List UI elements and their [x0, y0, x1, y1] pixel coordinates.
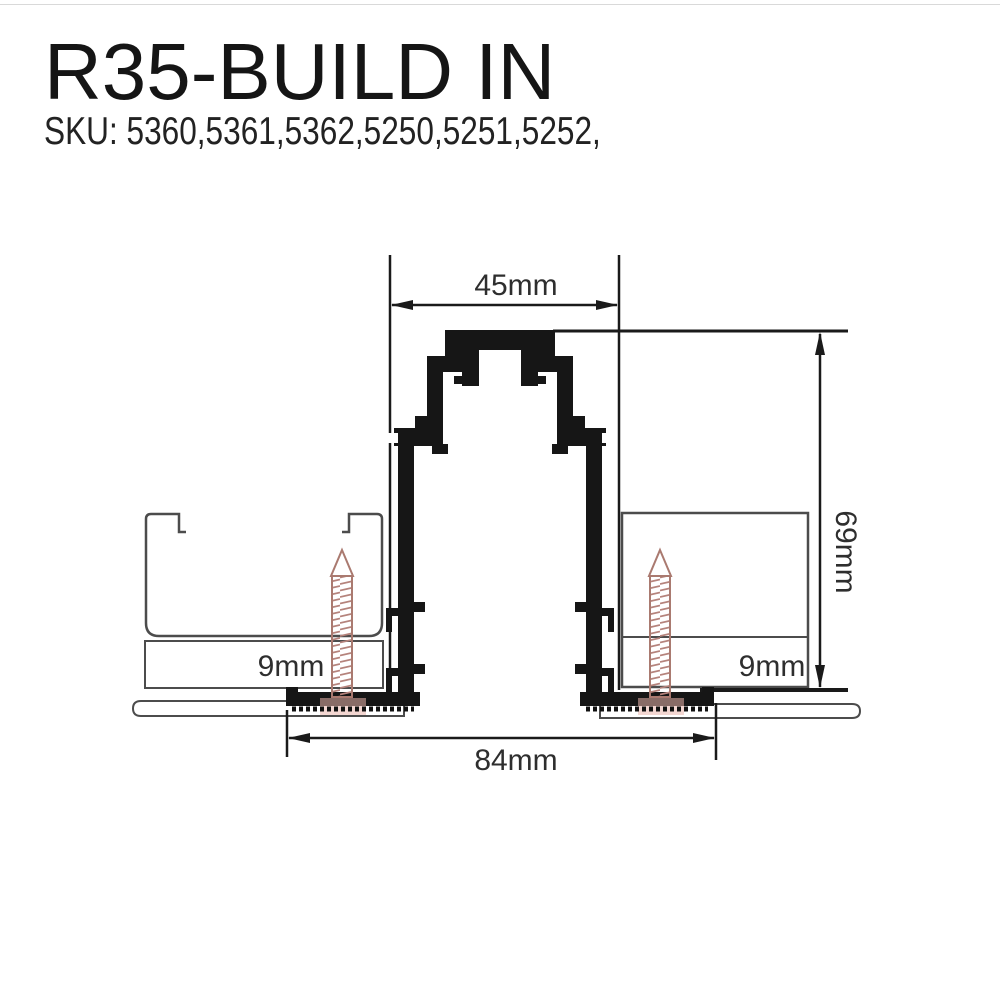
- arrowhead-right: [596, 300, 618, 310]
- product-dimension-sheet: R35-BUILD IN SKU: 5360,5361,5362,5250,52…: [0, 0, 1000, 1000]
- arrowhead-left: [391, 300, 413, 310]
- curl-notch-left: [384, 433, 398, 443]
- profile-leg-right: [586, 440, 602, 697]
- screw-tip-left: [331, 550, 353, 576]
- dim-45mm: 45mm: [391, 269, 618, 310]
- arrowhead-left: [288, 733, 310, 743]
- profile-leg-left: [398, 440, 414, 697]
- screw-right: [649, 550, 671, 697]
- arrowhead-down: [815, 665, 825, 688]
- arrowhead-up: [815, 332, 825, 355]
- dim-69mm: 69mm: [815, 332, 862, 688]
- screw-left: [331, 550, 353, 697]
- dim-84mm-label: 84mm: [474, 744, 557, 777]
- cap-hook-left: [462, 348, 479, 386]
- curl-notch-right: [602, 433, 616, 443]
- arrowhead-right: [693, 733, 715, 743]
- label-9mm-right: 9mm: [739, 650, 806, 683]
- profile-cross-section-diagram: 45mm 69mm 84mm 9mm 9mm: [0, 0, 1000, 1000]
- dim-69mm-label: 69mm: [829, 510, 862, 593]
- dim-45mm-label: 45mm: [474, 269, 557, 302]
- label-9mm-left: 9mm: [258, 650, 325, 683]
- cap-hook-right: [521, 348, 538, 386]
